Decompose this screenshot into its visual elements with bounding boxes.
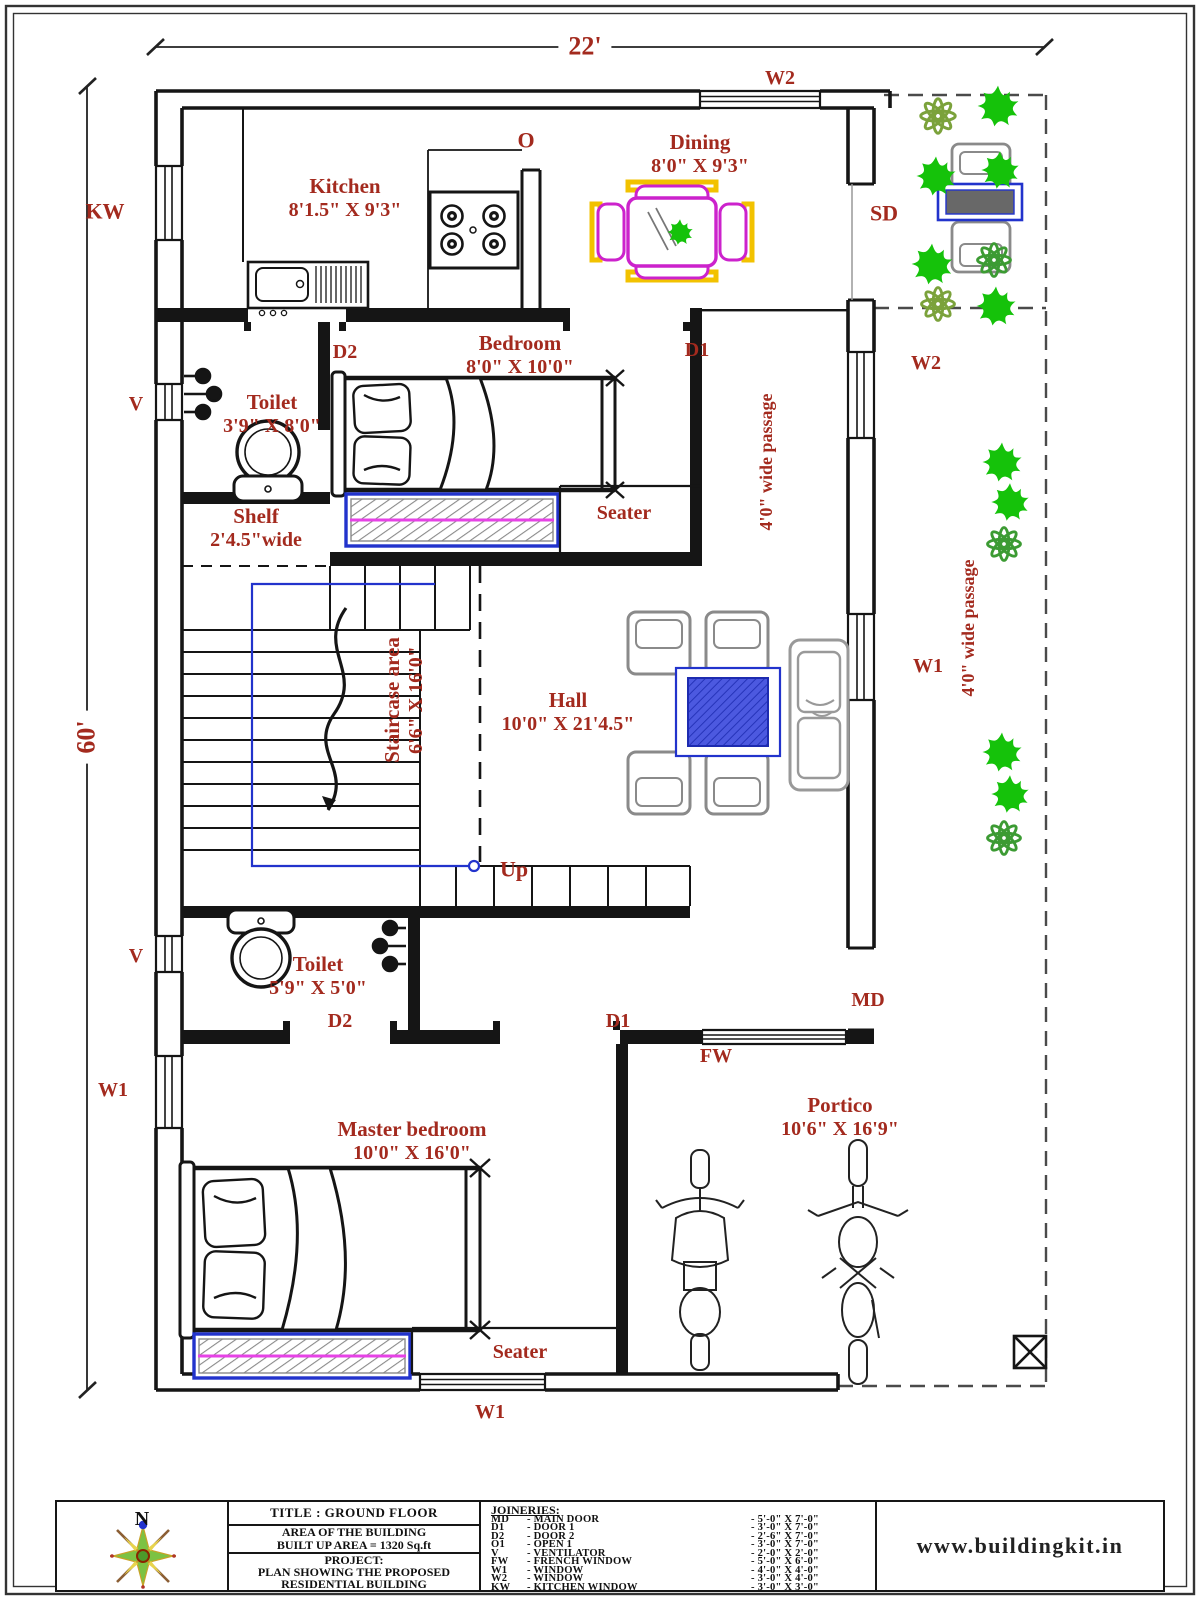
marker-v-toilet1: V: [129, 393, 143, 415]
room-label-kitchen: Kitchen8'1.5" X 9'3": [289, 175, 402, 221]
passage-label-1: 4'0" wide passage: [756, 393, 776, 530]
title-block: N: [55, 1500, 1165, 1592]
website-text: www.buildingkit.in: [917, 1533, 1124, 1559]
passage-label-2: 4'0" wide passage: [958, 559, 978, 696]
marker-w2-right: W2: [911, 352, 941, 374]
room-label-shelf: Shelf2'4.5"wide: [210, 505, 302, 551]
marker-fw: FW: [700, 1045, 732, 1067]
drawing-title: TITLE : GROUND FLOOR: [229, 1502, 479, 1526]
room-label-staircase: Staircase area6'6" X 16'0": [381, 637, 427, 763]
seater-label-1: Seater: [597, 502, 651, 524]
room-label-master-bedroom: Master bedroom10'0" X 16'0": [337, 1118, 486, 1164]
joineries-cell: JOINERIES: MD - MAIN DOOR - 5'-0" X 7'-0…: [481, 1502, 877, 1590]
marker-v-toilet2: V: [129, 945, 143, 967]
up-label: Up: [500, 858, 528, 883]
marker-d1-bedroom: D1: [685, 339, 709, 361]
joinery-row: KW - KITCHEN WINDOW - 3'-0" X 3'-0": [491, 1584, 869, 1592]
marker-w1-bottom: W1: [475, 1401, 505, 1423]
marker-o: O: [517, 129, 534, 154]
title-info-cell: TITLE : GROUND FLOOR AREA OF THE BUILDIN…: [229, 1502, 481, 1590]
compass-north-label: N: [135, 1508, 149, 1531]
marker-w2-top: W2: [765, 67, 795, 89]
project-info: PROJECT: PLAN SHOWING THE PROPOSED RESID…: [229, 1554, 479, 1590]
marker-sd: SD: [870, 202, 898, 227]
top-dimension: 22': [558, 31, 611, 60]
marker-w1-left: W1: [98, 1079, 128, 1101]
room-label-dining: Dining8'0" X 9'3": [651, 131, 749, 177]
marker-kw: KW: [85, 200, 124, 225]
left-dimension: 60': [71, 710, 100, 763]
room-label-hall: Hall10'0" X 21'4.5": [502, 689, 635, 735]
floor-plan-page: 22' 60' Kitchen8'1.5" X 9'3" Dining8'0" …: [0, 0, 1200, 1600]
marker-md: MD: [851, 989, 884, 1011]
marker-d2-toilet2: D2: [328, 1010, 352, 1032]
area-info: AREA OF THE BUILDING BUILT UP AREA = 132…: [229, 1526, 479, 1554]
marker-d1-master: D1: [606, 1010, 630, 1032]
marker-d2-bedroom: D2: [333, 341, 357, 363]
room-label-toilet1: Toilet3'9" X 8'0": [223, 391, 321, 437]
room-label-bedroom: Bedroom8'0" X 10'0": [466, 332, 574, 378]
room-label-portico: Portico10'6" X 16'9": [781, 1094, 899, 1140]
marker-w1-right: W1: [913, 655, 943, 677]
labels-layer: 22' 60' Kitchen8'1.5" X 9'3" Dining8'0" …: [0, 0, 1200, 1600]
seater-label-2: Seater: [493, 1341, 547, 1363]
website-cell: www.buildingkit.in: [877, 1502, 1163, 1590]
room-label-toilet2: Toilet5'9" X 5'0": [269, 953, 367, 999]
compass-cell: N: [57, 1502, 229, 1590]
